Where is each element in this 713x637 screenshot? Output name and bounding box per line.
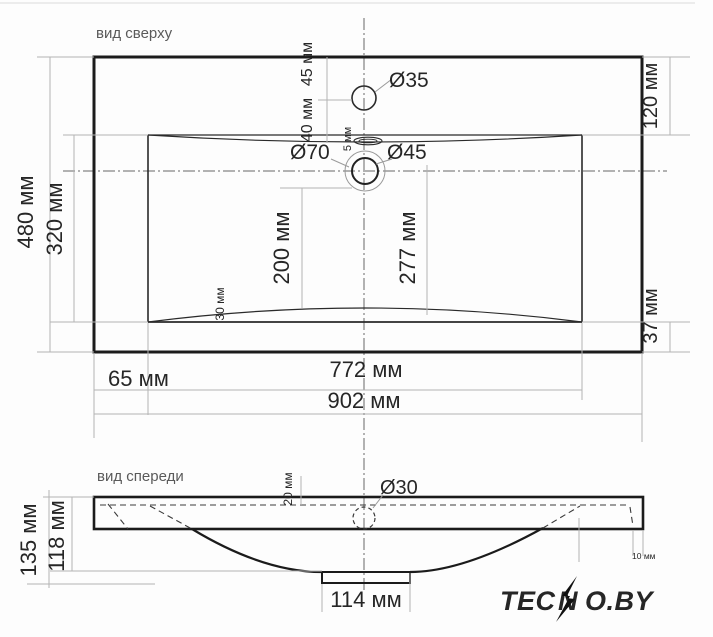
drawing-canvas: вид сверху (0, 0, 713, 637)
watermark-text-3: O.BY (585, 586, 656, 616)
brand-watermark: TEC N O.BY (500, 576, 656, 622)
dim-faucet-to-basin: 40 мм (299, 98, 316, 142)
front-view-label: вид спереди (97, 468, 184, 485)
basin-profile-curve (192, 528, 543, 583)
dim-left-offset: 65 мм (108, 366, 169, 391)
dim-basin-width: 772 мм (329, 357, 402, 382)
dim-drain-inner: Ø45 (387, 141, 427, 164)
dim-faucet-offset-top: 45 мм (299, 42, 316, 86)
dim-center-to-front: 277 мм (395, 211, 420, 284)
dim-drain-width: 114 мм (330, 587, 401, 612)
dim-right-top-offset: 120 мм (640, 63, 662, 129)
front-hidden-lines (100, 504, 633, 529)
dim-top-inset: 20 мм (281, 472, 295, 505)
dim-overflow-slot: 5 мм (342, 127, 354, 151)
watermark-text-1: TEC (500, 586, 556, 616)
dim-right-bottom-offset: 37 мм (640, 288, 662, 343)
drain-stub (322, 572, 410, 583)
technical-drawing-sink: вид сверху (0, 0, 713, 637)
dim-drain-to-front: 200 мм (269, 211, 294, 284)
dim-front-lip: 30 мм (213, 287, 227, 320)
dim-height-basin: 118 мм (44, 500, 69, 571)
dim-overflow-diameter: Ø30 (380, 477, 418, 499)
dim-depth-overall: 480 мм (13, 175, 38, 248)
front-slab-outline (94, 497, 643, 529)
dim-drain-outer: Ø70 (290, 141, 330, 164)
top-view: вид сверху (13, 18, 690, 592)
dim-height-overall: 135 мм (16, 503, 41, 576)
overflow-slot (354, 137, 382, 145)
top-view-label: вид сверху (96, 25, 173, 42)
dim-edge-inset: 10 мм (632, 551, 656, 561)
dim-faucet-diameter: Ø35 (389, 69, 429, 92)
dim-overall-width: 902 мм (327, 388, 400, 413)
dim-depth-basin: 320 мм (42, 182, 67, 255)
